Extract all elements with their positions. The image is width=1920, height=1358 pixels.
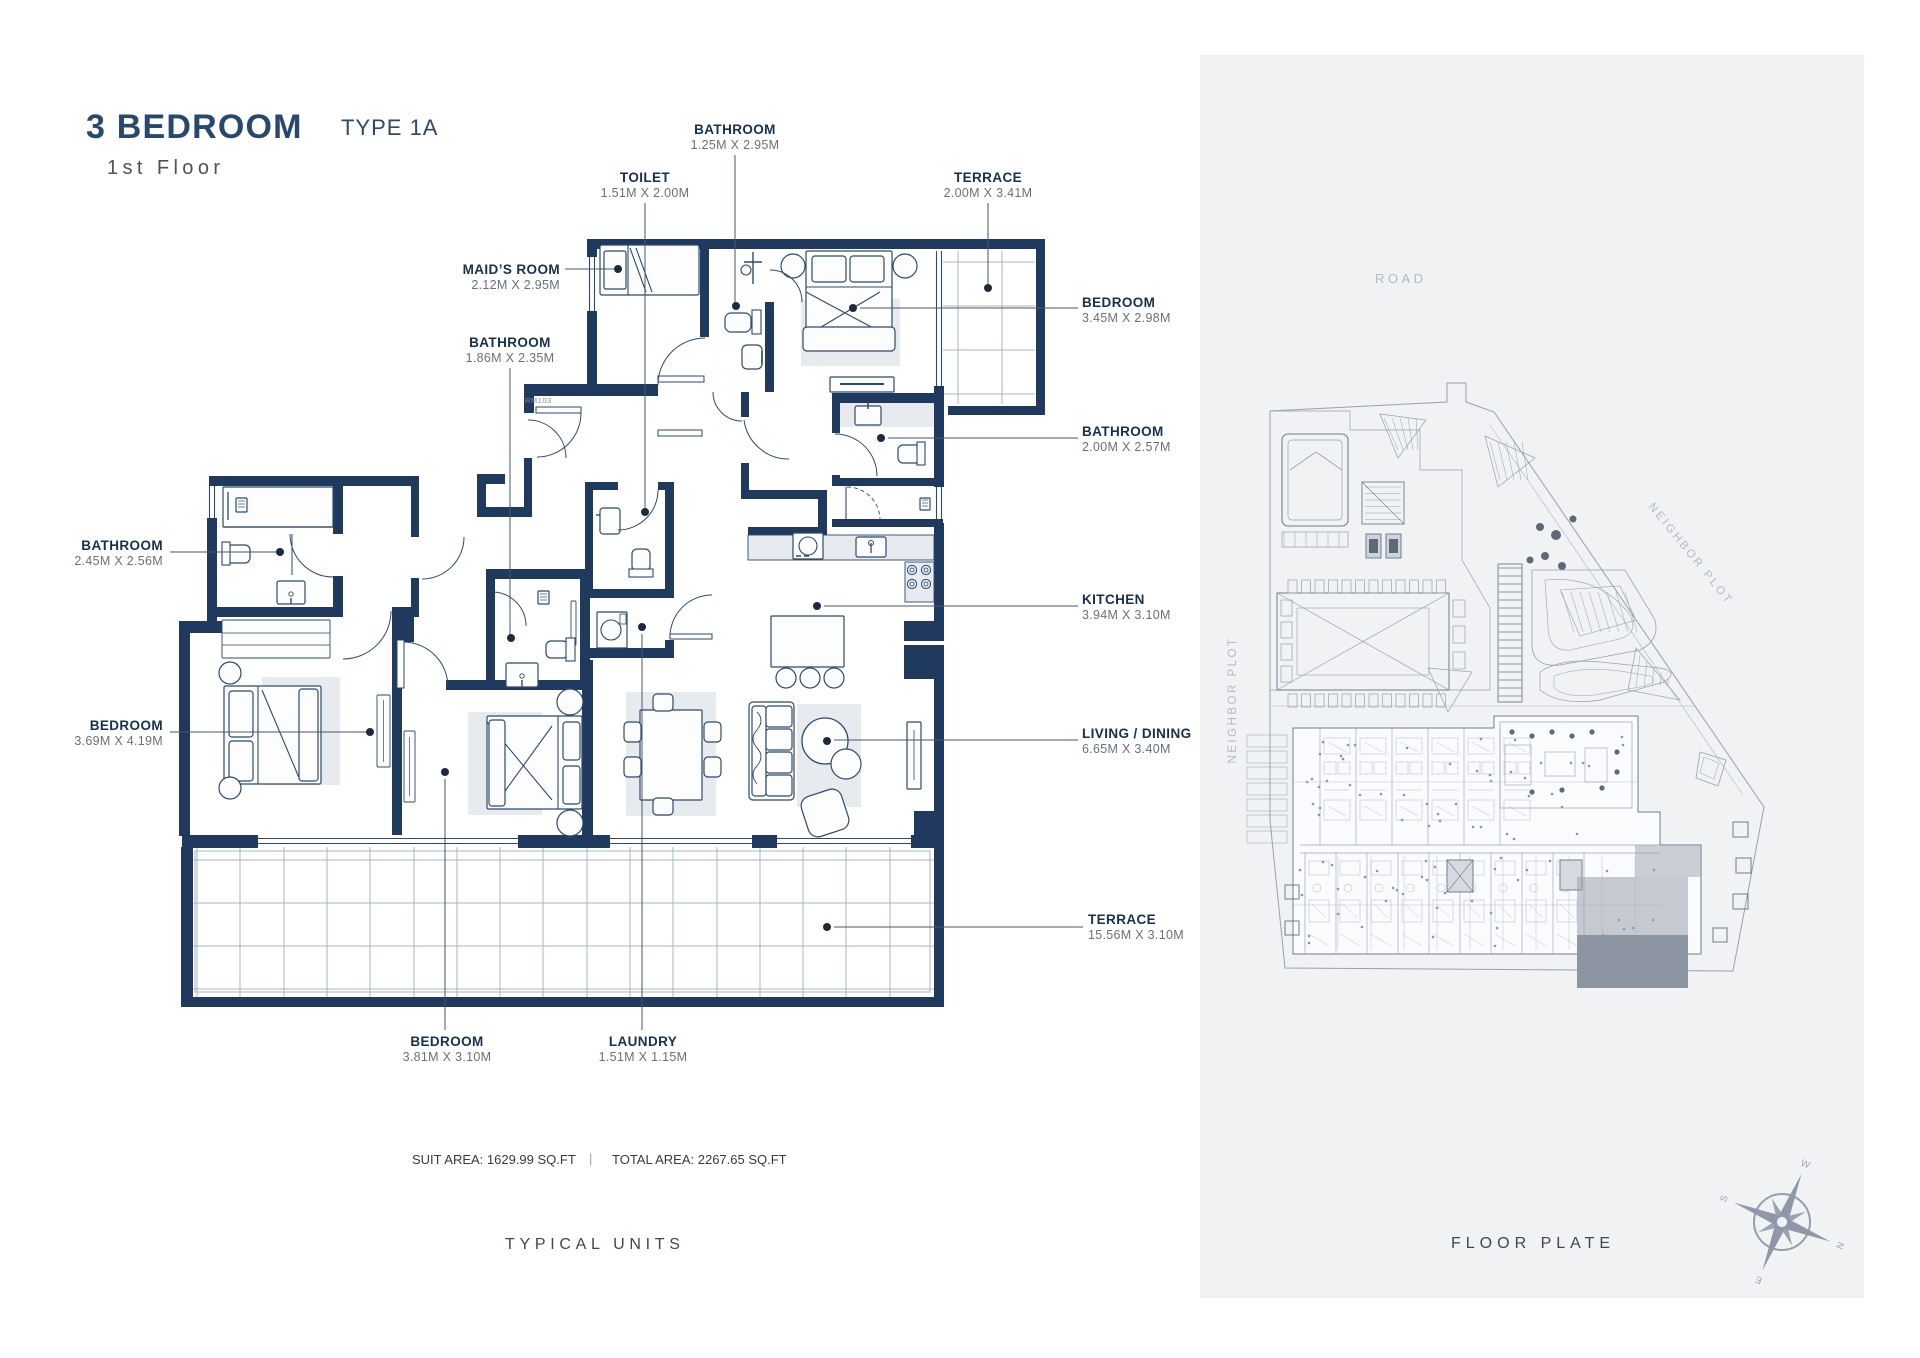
svg-text:3.94M X 3.10M: 3.94M X 3.10M	[1082, 608, 1171, 622]
svg-text:ROAD: ROAD	[1375, 271, 1427, 286]
svg-text:|: |	[589, 1151, 592, 1166]
svg-text:BEDROOM: BEDROOM	[1082, 295, 1155, 310]
svg-text:BATHROOM: BATHROOM	[694, 122, 776, 137]
svg-text:3.69M X 4.19M: 3.69M X 4.19M	[74, 734, 163, 748]
svg-text:BATHROOM: BATHROOM	[469, 335, 551, 350]
svg-text:MAID’S ROOM: MAID’S ROOM	[463, 262, 560, 277]
svg-text:TERRACE: TERRACE	[954, 170, 1022, 185]
svg-text:BEDROOM: BEDROOM	[90, 718, 163, 733]
svg-text:BATHROOM: BATHROOM	[81, 538, 163, 553]
svg-text:2.00M X 3.41M: 2.00M X 3.41M	[944, 186, 1033, 200]
svg-text:1st Floor: 1st Floor	[107, 157, 224, 179]
svg-text:1.25M X 2.95M: 1.25M X 2.95M	[691, 138, 780, 152]
svg-text:TOTAL AREA: 2267.65 SQ.FT: TOTAL AREA: 2267.65 SQ.FT	[612, 1152, 787, 1167]
svg-text:BEDROOM: BEDROOM	[410, 1034, 483, 1049]
svg-text:TOILET: TOILET	[620, 170, 671, 185]
svg-text:3 BEDROOM: 3 BEDROOM	[86, 108, 303, 146]
svg-text:KITCHEN: KITCHEN	[1082, 592, 1145, 607]
svg-text:LAUNDRY: LAUNDRY	[609, 1034, 677, 1049]
svg-text:NEIGHBOR PLOT: NEIGHBOR PLOT	[1227, 636, 1239, 763]
svg-text:1.86M X 2.35M: 1.86M X 2.35M	[466, 351, 555, 365]
svg-text:1.51M X 2.00M: 1.51M X 2.00M	[601, 186, 690, 200]
svg-text:LIVING / DINING: LIVING / DINING	[1082, 726, 1192, 741]
svg-text:15.56M X 3.10M: 15.56M X 3.10M	[1088, 928, 1184, 942]
svg-text:TYPICAL UNITS: TYPICAL UNITS	[505, 1236, 685, 1253]
svg-text:BATHROOM: BATHROOM	[1082, 424, 1164, 439]
svg-text:SUIT AREA: 1629.99 SQ.FT: SUIT AREA: 1629.99 SQ.FT	[412, 1152, 576, 1167]
svg-text:TERRACE: TERRACE	[1088, 912, 1156, 927]
svg-text:3.45M X 2.98M: 3.45M X 2.98M	[1082, 311, 1171, 325]
svg-text:2.45M X 2.56M: 2.45M X 2.56M	[74, 554, 163, 568]
svg-text:3.81M X 3.10M: 3.81M X 3.10M	[403, 1050, 492, 1064]
svg-text:FLOOR PLATE: FLOOR PLATE	[1451, 1235, 1615, 1252]
svg-text:2.12M X 2.95M: 2.12M X 2.95M	[471, 278, 560, 292]
svg-text:TYPE 1A: TYPE 1A	[341, 115, 438, 140]
svg-text:2.00M X 2.57M: 2.00M X 2.57M	[1082, 440, 1171, 454]
svg-text:6.65M X 3.40M: 6.65M X 3.40M	[1082, 742, 1171, 756]
svg-text:RM103: RM103	[525, 396, 552, 405]
svg-text:1.51M X 1.15M: 1.51M X 1.15M	[599, 1050, 688, 1064]
